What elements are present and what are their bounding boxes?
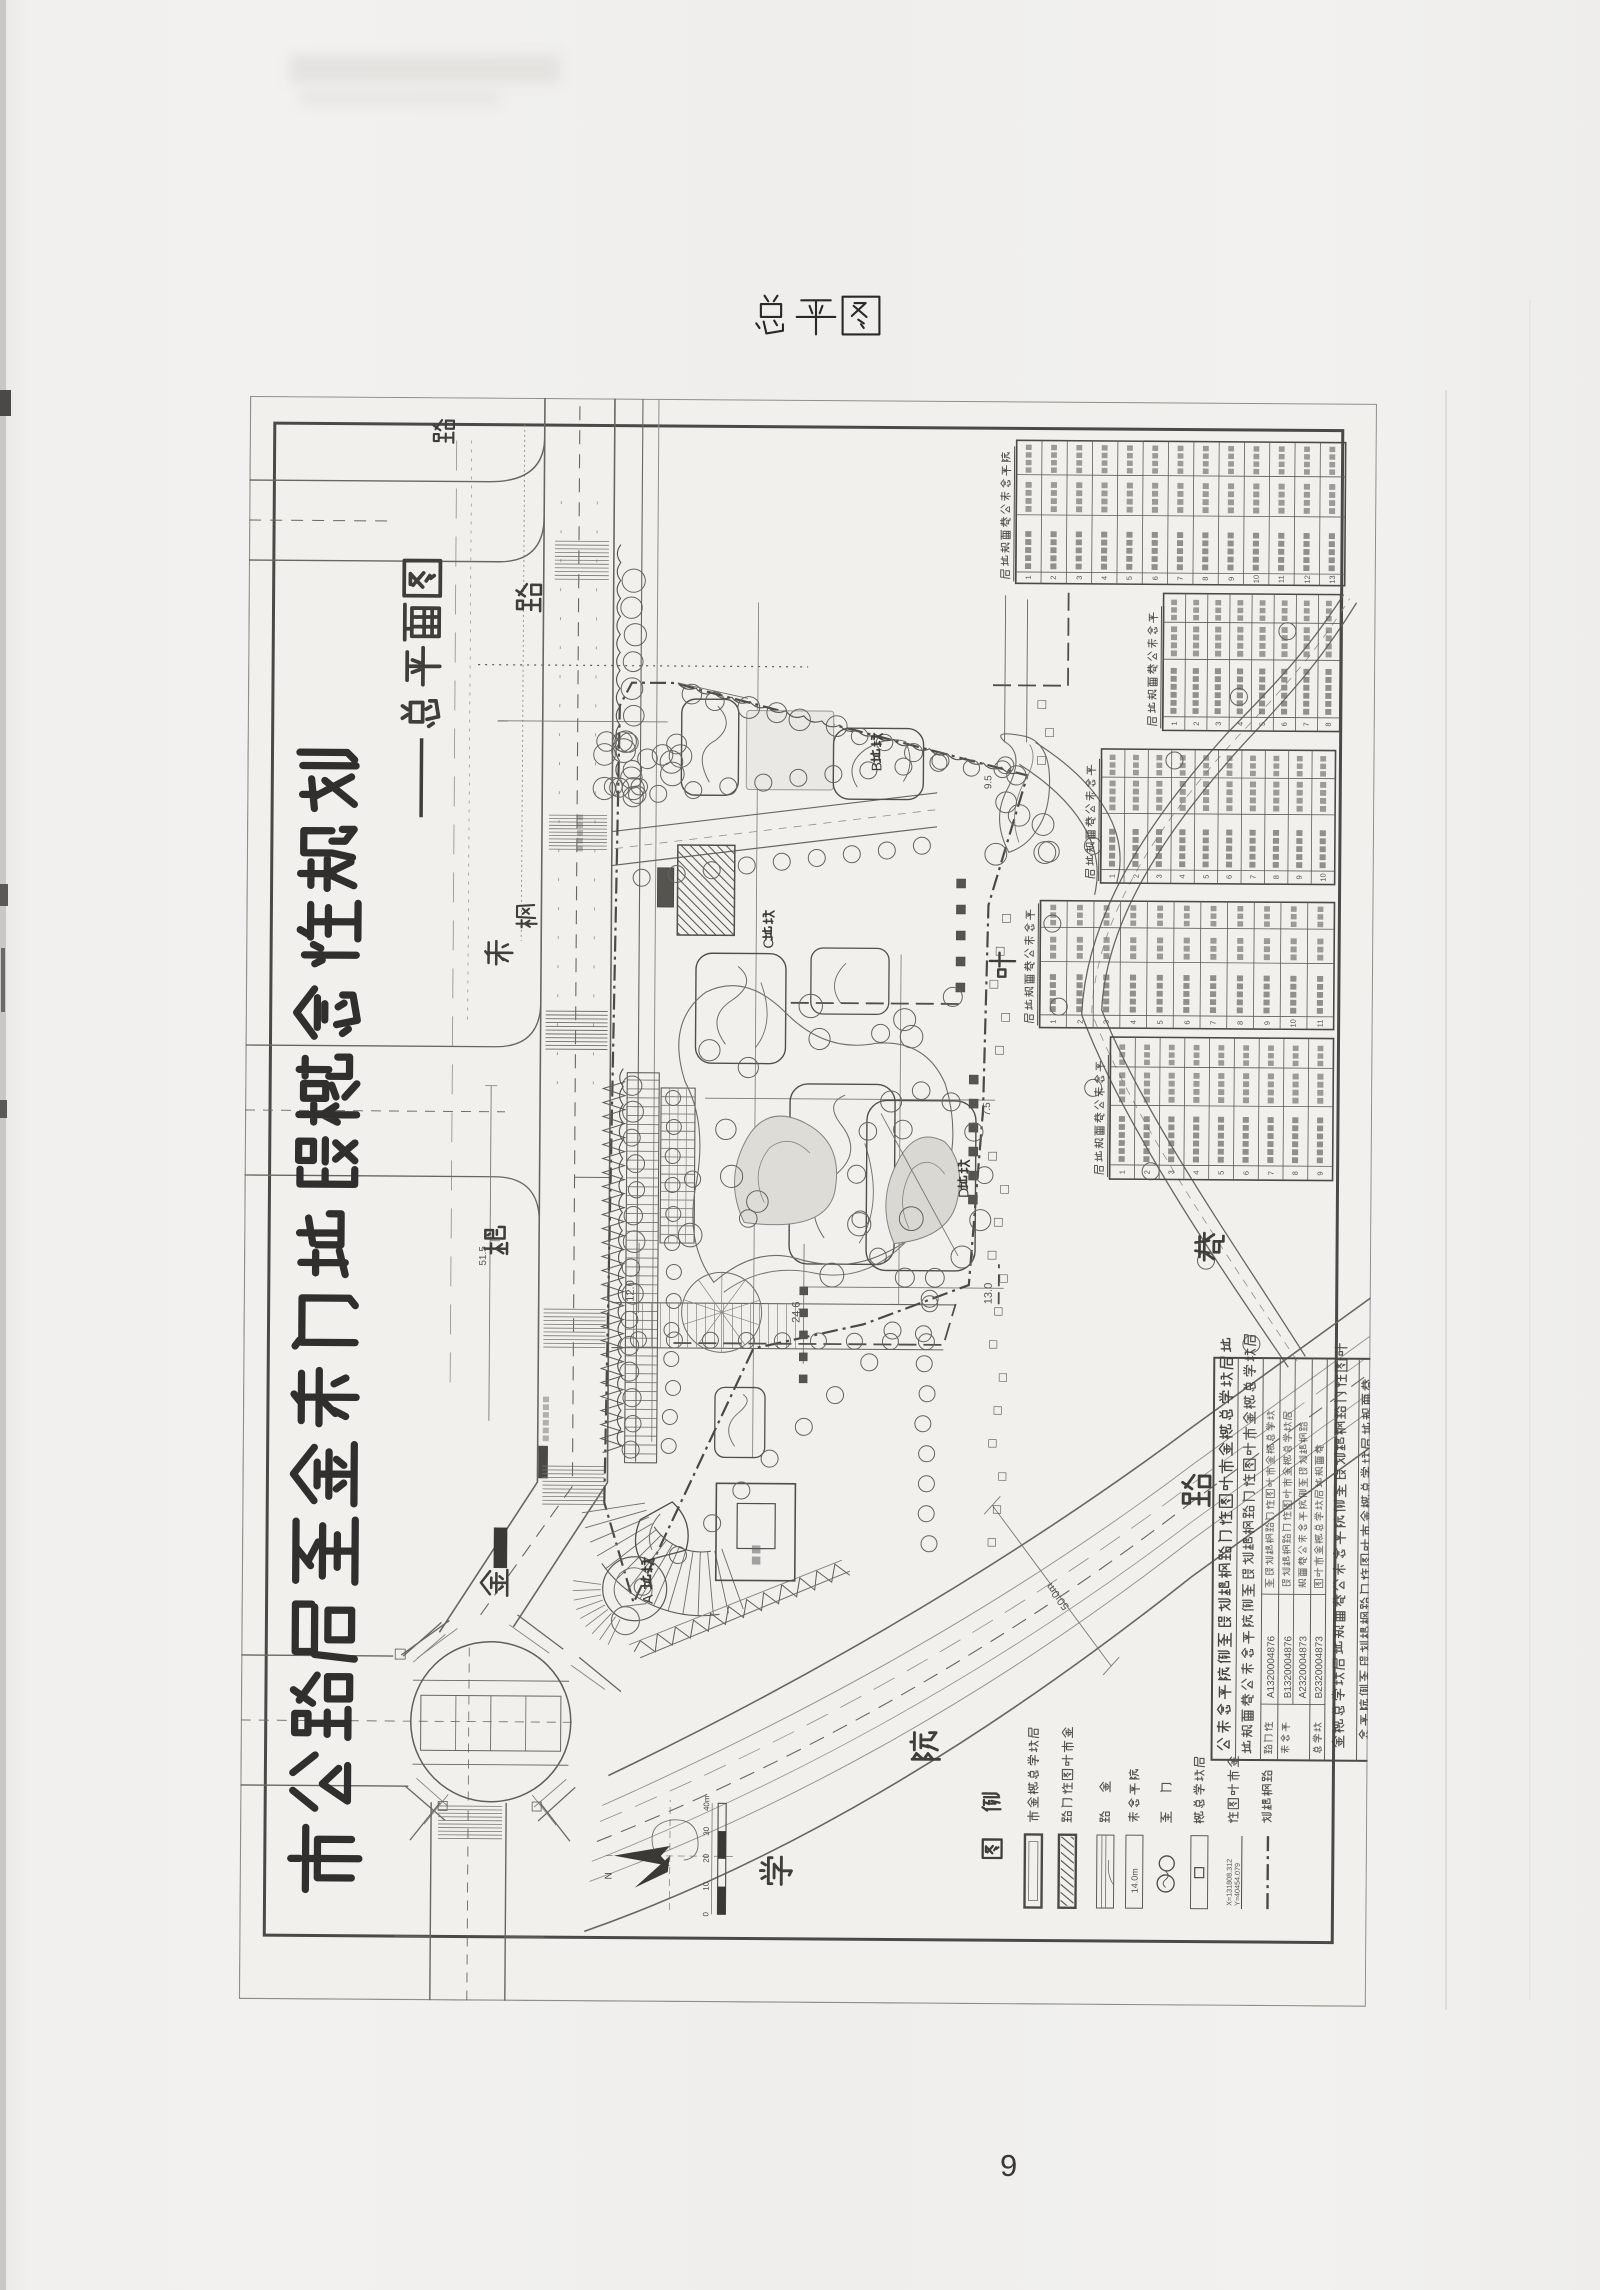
svg-text:9: 9 (1316, 1171, 1325, 1175)
svg-text:8: 8 (1201, 577, 1210, 581)
svg-text:7.5: 7.5 (982, 1102, 993, 1116)
svg-text:6: 6 (1280, 722, 1289, 726)
svg-text:9.5: 9.5 (983, 775, 994, 789)
svg-text:9: 9 (1227, 577, 1236, 581)
svg-text:2: 2 (1143, 1170, 1152, 1174)
svg-text:D: D (955, 1188, 971, 1198)
svg-text:24.6: 24.6 (791, 1301, 803, 1323)
svg-text:40m: 40m (702, 1795, 711, 1811)
svg-text:1: 1 (1108, 874, 1117, 878)
svg-text:B2320004873: B2320004873 (1314, 1636, 1325, 1699)
svg-text:2: 2 (1076, 1020, 1085, 1024)
svg-text:10: 10 (1289, 1019, 1298, 1027)
svg-text:2: 2 (1132, 874, 1141, 878)
svg-text:2: 2 (1049, 575, 1058, 579)
svg-text:5: 5 (1156, 1020, 1165, 1024)
svg-text:5: 5 (1258, 722, 1267, 726)
svg-text:6: 6 (1151, 576, 1160, 580)
svg-text:A2320004873: A2320004873 (1298, 1636, 1309, 1699)
svg-text:0: 0 (701, 1911, 710, 1916)
svg-text:6: 6 (1242, 1171, 1251, 1175)
svg-text:C: C (760, 938, 776, 948)
svg-text:3: 3 (1214, 722, 1223, 726)
svg-text:2: 2 (1192, 721, 1201, 725)
svg-text:13.0: 13.0 (983, 1283, 995, 1305)
svg-text:51.5: 51.5 (478, 1246, 489, 1266)
svg-text:8: 8 (1272, 875, 1281, 879)
svg-text:30: 30 (702, 1826, 711, 1836)
svg-text:4: 4 (1236, 722, 1245, 726)
svg-text:20: 20 (702, 1853, 711, 1863)
svg-text:3: 3 (1075, 576, 1084, 580)
svg-text:10: 10 (702, 1881, 711, 1891)
svg-text:4: 4 (1100, 576, 1109, 580)
svg-text:1: 1 (1118, 1170, 1127, 1174)
svg-text:7: 7 (1267, 1171, 1276, 1175)
svg-text:1: 1 (1049, 1020, 1058, 1024)
svg-text:11: 11 (1316, 1020, 1325, 1028)
svg-text:A1320004876: A1320004876 (1266, 1635, 1277, 1698)
svg-text:B1320004876: B1320004876 (1283, 1636, 1294, 1699)
svg-text:3: 3 (1155, 874, 1164, 878)
svg-text:7: 7 (1176, 576, 1185, 580)
svg-text:A: A (640, 1594, 656, 1604)
svg-text:7: 7 (1209, 1021, 1218, 1025)
svg-text:4: 4 (1192, 1171, 1201, 1175)
svg-text:1: 1 (1024, 575, 1033, 579)
svg-text:3: 3 (1167, 1170, 1176, 1174)
svg-text:6: 6 (1225, 875, 1234, 879)
svg-text:12.0: 12.0 (625, 1280, 637, 1302)
svg-text:8: 8 (1324, 722, 1333, 726)
svg-text:Y=40454.079: Y=40454.079 (1232, 1863, 1241, 1906)
svg-text:10: 10 (1319, 873, 1328, 881)
svg-text:7: 7 (1249, 875, 1258, 879)
svg-text:N: N (604, 1872, 615, 1879)
svg-text:9: 9 (1295, 875, 1304, 879)
svg-text:11: 11 (1277, 575, 1286, 583)
svg-text:4: 4 (1129, 1020, 1138, 1024)
svg-text:1: 1 (1170, 721, 1179, 725)
svg-text:7: 7 (1302, 722, 1311, 726)
svg-text:12: 12 (1303, 575, 1312, 583)
svg-text:14.0m: 14.0m (1130, 1868, 1140, 1893)
svg-text:8: 8 (1236, 1021, 1245, 1025)
svg-text:13: 13 (1328, 575, 1337, 583)
svg-text:5: 5 (1125, 576, 1134, 580)
svg-text:5: 5 (1217, 1171, 1226, 1175)
svg-text:9: 9 (1263, 1021, 1272, 1025)
svg-text:3: 3 (1102, 1020, 1111, 1024)
svg-text:8: 8 (1291, 1171, 1300, 1175)
svg-text:B: B (868, 762, 884, 771)
svg-text:6: 6 (1183, 1020, 1192, 1024)
svg-text:5: 5 (1202, 875, 1211, 879)
svg-text:4: 4 (1178, 874, 1187, 878)
svg-text:10: 10 (1252, 575, 1261, 583)
